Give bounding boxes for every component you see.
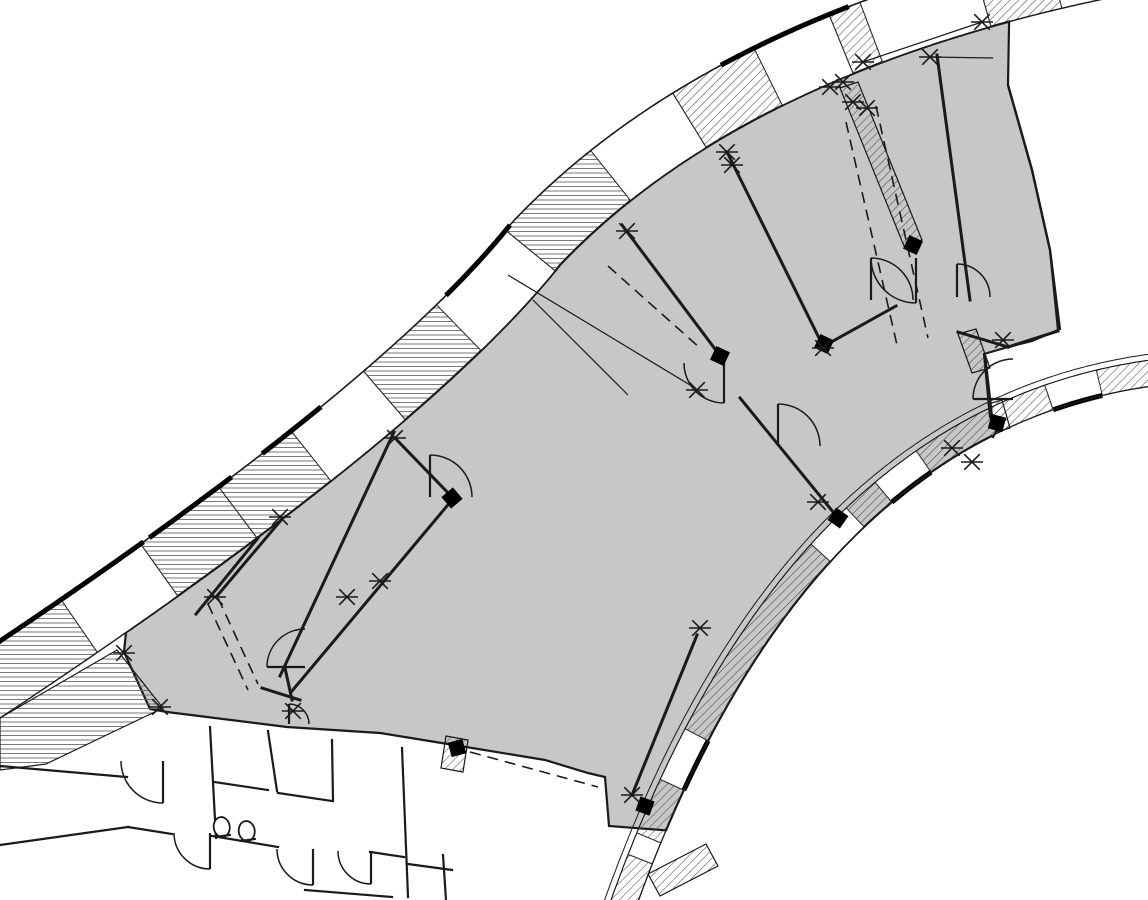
floor-plan-page [0,0,1148,900]
door-swing [338,851,371,884]
core-wall [443,855,446,900]
door-arc [338,851,371,884]
core-wall [128,827,172,834]
centerline-marker [961,454,983,470]
core-wall [305,890,392,897]
tenant-floor-polygon [124,22,1058,831]
core-wall [402,748,408,897]
toilet-fixture [237,820,256,842]
door-arc [174,833,210,869]
door-swing [121,761,163,803]
core-wall [332,740,333,801]
floor-area [124,22,1058,831]
core-wall [268,731,277,791]
core-wall [278,793,332,801]
door-swing [174,833,210,869]
floor-plan-canvas [0,0,1148,900]
door-arc [277,849,313,885]
core-wall [214,782,268,790]
door-swing [277,849,313,885]
hatched-wall-stub [648,844,718,896]
core-wall [408,864,452,870]
core-wall [370,852,404,857]
core-wall [0,766,127,777]
door-arc [121,761,163,803]
core-wall [0,827,128,845]
band-cell [603,854,652,900]
band-cell [1047,0,1148,8]
